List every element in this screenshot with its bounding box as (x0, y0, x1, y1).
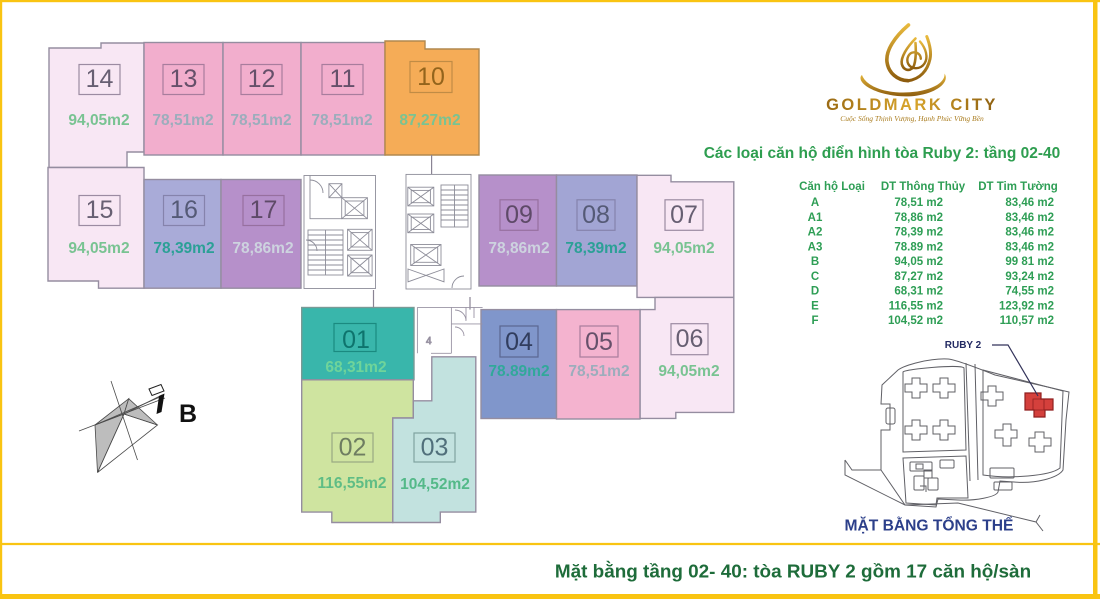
svg-text:17: 17 (250, 196, 278, 224)
svg-text:03: 03 (421, 434, 449, 462)
svg-text:05: 05 (585, 328, 613, 356)
svg-text:83,46 m2: 83,46 m2 (1005, 241, 1054, 253)
svg-text:78.89 m2: 78.89 m2 (894, 241, 943, 253)
svg-text:11: 11 (330, 65, 356, 93)
svg-text:02: 02 (339, 434, 367, 462)
svg-text:06: 06 (676, 325, 704, 353)
svg-text:83,46 m2: 83,46 m2 (1005, 212, 1054, 224)
svg-text:94,05m2: 94,05m2 (68, 240, 129, 257)
svg-text:94,05 m2: 94,05 m2 (894, 256, 943, 268)
svg-text:B: B (811, 256, 819, 268)
svg-text:94,05m2: 94,05m2 (653, 240, 714, 257)
svg-text:E: E (811, 300, 819, 312)
svg-text:78,39 m2: 78,39 m2 (894, 227, 943, 239)
svg-text:78,51 m2: 78,51 m2 (894, 197, 943, 209)
svg-text:78,86m2: 78,86m2 (488, 240, 549, 257)
svg-text:78,86m2: 78,86m2 (232, 240, 293, 257)
svg-text:104,52m2: 104,52m2 (400, 476, 470, 493)
svg-text:Mặt bằng tầng 02- 40: tòa RUB: Mặt bằng tầng 02- 40: tòa RUBY 2 gồm 17 … (555, 561, 1031, 583)
svg-text:93,24 m2: 93,24 m2 (1005, 271, 1054, 283)
svg-text:94,05m2: 94,05m2 (658, 363, 719, 380)
svg-text:13: 13 (170, 65, 198, 93)
svg-text:83,46 m2: 83,46 m2 (1005, 197, 1054, 209)
svg-text:116,55 m2: 116,55 m2 (889, 300, 943, 312)
svg-text:A1: A1 (808, 212, 823, 224)
svg-text:78,86 m2: 78,86 m2 (894, 212, 943, 224)
svg-text:78,39m2: 78,39m2 (153, 240, 214, 257)
svg-text:123,92 m2: 123,92 m2 (999, 300, 1054, 312)
svg-text:A: A (811, 197, 819, 209)
svg-text:09: 09 (505, 201, 533, 229)
svg-text:08: 08 (582, 201, 610, 229)
svg-text:D: D (811, 286, 819, 298)
svg-text:74,55 m2: 74,55 m2 (1005, 286, 1054, 298)
svg-text:A2: A2 (808, 227, 823, 239)
svg-text:68,31 m2: 68,31 m2 (894, 286, 943, 298)
svg-text:DT Thông Thủy: DT Thông Thủy (881, 181, 966, 193)
svg-text:10: 10 (417, 63, 445, 91)
svg-text:07: 07 (670, 201, 698, 229)
svg-text:12: 12 (248, 65, 276, 93)
svg-text:DT Tim Tường: DT Tim Tường (978, 181, 1058, 193)
svg-text:15: 15 (86, 196, 114, 224)
svg-text:01: 01 (342, 326, 370, 354)
svg-text:Các loại căn hộ điển hình tòa: Các loại căn hộ điển hình tòa Ruby 2: tầ… (704, 145, 1061, 162)
svg-text:78,51m2: 78,51m2 (568, 363, 629, 380)
svg-text:16: 16 (170, 196, 198, 224)
svg-text:78,51m2: 78,51m2 (311, 112, 372, 129)
svg-text:B: B (179, 400, 197, 428)
svg-text:68,31m2: 68,31m2 (325, 359, 386, 376)
svg-text:116,55m2: 116,55m2 (318, 475, 387, 492)
svg-text:83,46 m2: 83,46 m2 (1005, 227, 1054, 239)
svg-text:99 81 m2: 99 81 m2 (1005, 256, 1054, 268)
svg-text:4: 4 (426, 336, 432, 347)
svg-text:104,52 m2: 104,52 m2 (888, 315, 943, 327)
svg-text:78.89m2: 78.89m2 (488, 363, 549, 380)
svg-text:14: 14 (86, 65, 114, 93)
svg-text:110,57 m2: 110,57 m2 (1000, 315, 1054, 327)
svg-text:F: F (811, 315, 818, 327)
svg-text:78,51m2: 78,51m2 (230, 112, 291, 129)
svg-text:87,27 m2: 87,27 m2 (894, 271, 943, 283)
svg-text:Căn hộ Loại: Căn hộ Loại (799, 181, 865, 193)
svg-text:Cuộc Sống Thịnh Vượng, Hạnh Ph: Cuộc Sống Thịnh Vượng, Hạnh Phúc Vững Bề… (840, 114, 984, 123)
svg-text:RUBY 2: RUBY 2 (945, 340, 982, 351)
svg-text:78,39m2: 78,39m2 (565, 240, 626, 257)
svg-text:87,27m2: 87,27m2 (399, 112, 460, 129)
svg-text:04: 04 (505, 328, 533, 356)
svg-text:MẶT BẰNG TỔNG THỂ: MẶT BẰNG TỔNG THỂ (845, 516, 1014, 535)
svg-text:GOLDMARK CITY: GOLDMARK CITY (826, 96, 998, 114)
svg-text:78,51m2: 78,51m2 (152, 112, 213, 129)
svg-text:C: C (811, 271, 819, 283)
svg-text:A3: A3 (808, 241, 823, 253)
svg-text:94,05m2: 94,05m2 (68, 112, 129, 129)
